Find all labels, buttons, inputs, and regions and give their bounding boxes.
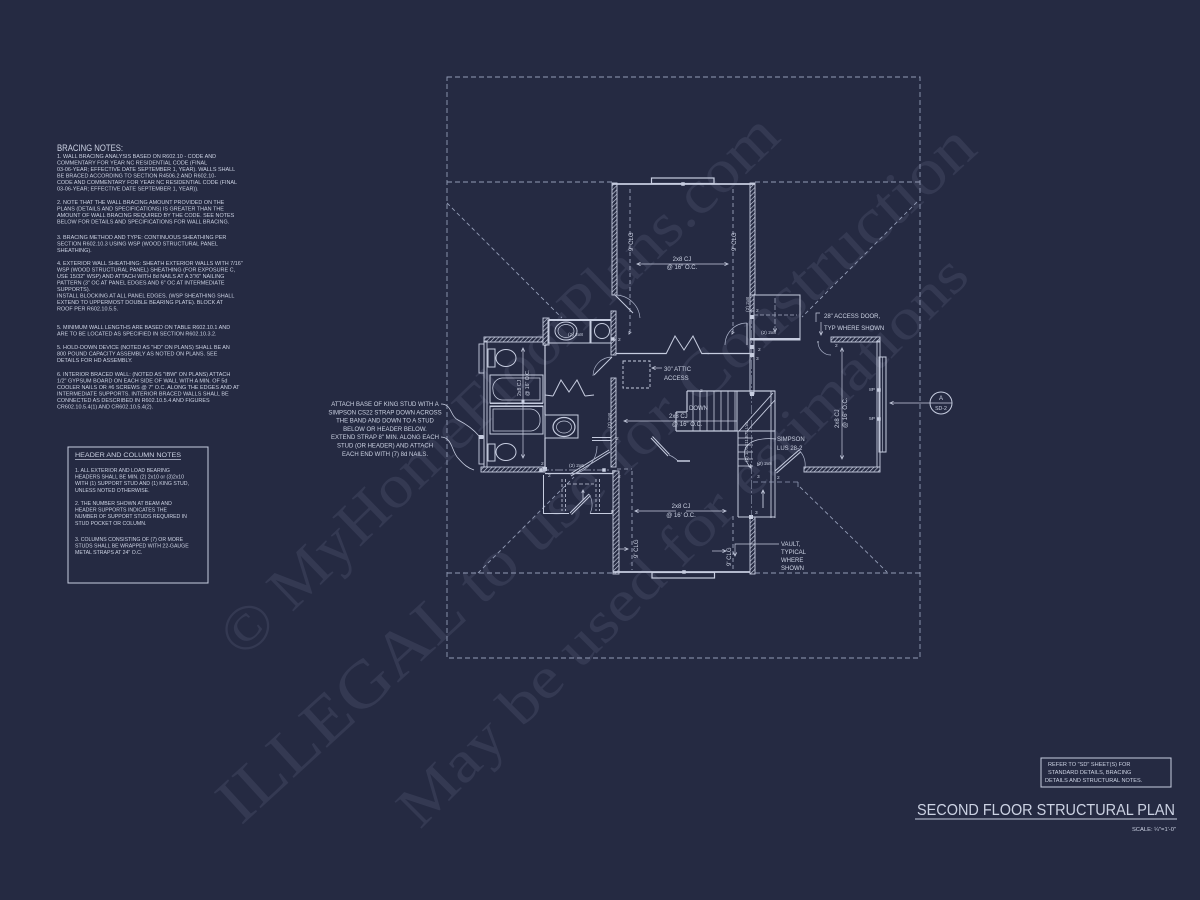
svg-text:HEADER SUPPORTS INDICATES THE: HEADER SUPPORTS INDICATES THE — [75, 508, 167, 514]
svg-text:2: 2 — [548, 473, 551, 479]
svg-text:SD-2: SD-2 — [935, 406, 947, 412]
svg-text:@ 16" O.C.: @ 16" O.C. — [843, 397, 849, 428]
svg-text:ARE TO BE LOCATED AS SPECIFIED: ARE TO BE LOCATED AS SPECIFIED IN SECTIO… — [57, 332, 217, 338]
svg-text:2x8 CJ: 2x8 CJ — [517, 379, 523, 396]
svg-text:REFER TO "SD" SHEET(S) FOR: REFER TO "SD" SHEET(S) FOR — [1048, 762, 1130, 768]
svg-text:@ 16" O.C.: @ 16" O.C. — [667, 265, 698, 271]
svg-text:3. COLUMNS CONSISTING OF (7) O: 3. COLUMNS CONSISTING OF (7) OR MORE — [75, 537, 184, 543]
svg-text:(2) 2x8: (2) 2x8 — [568, 332, 583, 338]
svg-text:9' CLG: 9' CLG — [732, 232, 738, 251]
svg-text:STUD POCKET OR COLUMN.: STUD POCKET OR COLUMN. — [75, 521, 146, 527]
svg-text:1. WALL BRACING ANALYSIS BASED: 1. WALL BRACING ANALYSIS BASED ON R602.1… — [57, 154, 216, 160]
svg-text:2: 2 — [758, 347, 761, 353]
svg-text:@ 16" O.C.: @ 16" O.C. — [672, 422, 703, 428]
svg-text:TYP WHERE SHOWN: TYP WHERE SHOWN — [824, 326, 884, 332]
svg-text:(2) 2x6: (2) 2x6 — [569, 463, 584, 469]
svg-text:SIMPSON CS22 STRAP DOWN ACROSS: SIMPSON CS22 STRAP DOWN ACROSS — [328, 410, 441, 416]
svg-text:3: 3 — [755, 510, 758, 516]
svg-text:28" ACCESS DOOR,: 28" ACCESS DOOR, — [824, 314, 880, 320]
svg-text:LUS 28-2: LUS 28-2 — [777, 446, 803, 452]
svg-text:8P: 8P — [869, 387, 875, 393]
svg-text:9' CLG: 9' CLG — [634, 539, 640, 558]
svg-text:2: 2 — [835, 343, 838, 349]
svg-text:3: 3 — [756, 356, 759, 362]
svg-text:EACH END WITH (7) 8d NAILS.: EACH END WITH (7) 8d NAILS. — [342, 452, 428, 458]
svg-text:COMMENTARY FOR YEAR NC RESIDEN: COMMENTARY FOR YEAR NC RESIDENTIAL CODE … — [57, 161, 207, 167]
svg-text:PATTERN (3" OC AT PANEL EDGES: PATTERN (3" OC AT PANEL EDGES AND 6" OC … — [57, 281, 225, 287]
svg-text:HEADER AND COLUMN NOTES: HEADER AND COLUMN NOTES — [75, 452, 181, 459]
svg-text:ROOF PER R602.10.5.5.: ROOF PER R602.10.5.5. — [57, 307, 119, 313]
svg-text:STANDARD DETAILS, BRACING: STANDARD DETAILS, BRACING — [1048, 770, 1131, 776]
svg-text:CR602.10.5.4(1) AND CR602.10.5: CR602.10.5.4(1) AND CR602.10.5.4(2). — [57, 405, 154, 411]
svg-text:2: 2 — [756, 308, 759, 314]
svg-text:03-06-YEAR; EFFECTIVE DATE SEP: 03-06-YEAR; EFFECTIVE DATE SEPTEMBER 1, … — [57, 187, 199, 193]
svg-text:2: 2 — [618, 337, 621, 343]
svg-text:2x8 CJ: 2x8 CJ — [669, 414, 688, 420]
svg-text:2: 2 — [616, 436, 619, 442]
svg-text:DOWN: DOWN — [689, 406, 708, 412]
svg-text:2: 2 — [541, 461, 544, 467]
svg-text:(2) 1.75x11.875 LVL: (2) 1.75x11.875 LVL — [744, 421, 749, 462]
svg-text:A: A — [939, 396, 943, 402]
svg-text:2: 2 — [757, 462, 760, 468]
svg-text:NUMBER OF SUPPORT STUDS REQUIR: NUMBER OF SUPPORT STUDS REQUIRED IN — [75, 514, 187, 520]
svg-text:CODE AND COMMENTARY FOR YEAR N: CODE AND COMMENTARY FOR YEAR NC RESIDENT… — [57, 180, 237, 186]
svg-text:2x8 CJ: 2x8 CJ — [835, 409, 841, 428]
svg-text:BE BRACED ACCORDING TO SECTION: BE BRACED ACCORDING TO SECTION R4506.2 A… — [57, 174, 216, 180]
svg-text:SHEATHING).: SHEATHING). — [57, 248, 92, 254]
svg-text:2: 2 — [544, 342, 547, 348]
svg-text:BELOW OR HEADER BELOW.: BELOW OR HEADER BELOW. — [343, 427, 427, 433]
svg-text:STUDS SHALL BE WRAPPED WITH 22: STUDS SHALL BE WRAPPED WITH 22-GAUGE — [75, 544, 189, 550]
svg-text:9' CLG: 9' CLG — [727, 547, 733, 566]
svg-text:AMOUNT OF WALL BRACING REQUIRE: AMOUNT OF WALL BRACING REQUIRED BY THE C… — [57, 213, 235, 219]
svg-text:(2) 2x8: (2) 2x8 — [607, 413, 613, 428]
svg-text:SUPPORTS).: SUPPORTS). — [57, 287, 91, 293]
svg-text:SECOND FLOOR STRUCTURAL PLAN: SECOND FLOOR STRUCTURAL PLAN — [917, 802, 1175, 819]
svg-text:2. NOTE THAT THE WALL BRACING: 2. NOTE THAT THE WALL BRACING AMOUNT PRO… — [57, 200, 225, 206]
svg-text:3. BRACING METHOD AND TYPE: CO: 3. BRACING METHOD AND TYPE: CONTINUOUS S… — [57, 235, 226, 241]
svg-text:DETAILS AND STRUCTURAL NOTES.: DETAILS AND STRUCTURAL NOTES. — [1045, 778, 1143, 784]
svg-text:1. ALL EXTERIOR AND LOAD BEARI: 1. ALL EXTERIOR AND LOAD BEARING — [75, 468, 170, 474]
svg-text:UNLESS NOTED OTHERWISE.: UNLESS NOTED OTHERWISE. — [75, 488, 150, 494]
svg-text:@ 16" O.C.: @ 16" O.C. — [525, 370, 531, 396]
svg-text:3: 3 — [757, 474, 760, 480]
svg-text:30" ATTIC: 30" ATTIC — [664, 367, 692, 373]
svg-text:BELOW FOR DETAILS AND SPECIFIC: BELOW FOR DETAILS AND SPECIFICATIONS FOR… — [57, 220, 230, 226]
svg-text:INSTALL BLOCKING AT ALL PANEL: INSTALL BLOCKING AT ALL PANEL EDGES. (WS… — [57, 294, 234, 300]
svg-text:ACCESS: ACCESS — [664, 376, 689, 382]
svg-text:5P: 5P — [869, 416, 875, 422]
svg-text:2: 2 — [777, 475, 780, 481]
svg-text:ATTACH BASE OF KING STUD WITH: ATTACH BASE OF KING STUD WITH A — [331, 402, 438, 408]
svg-text:CONNECTED AS DESCRIBED IN R602: CONNECTED AS DESCRIBED IN R602.10.5.4 AN… — [57, 398, 210, 404]
svg-text:5. MINIMUM WALL LENGTHS ARE BA: 5. MINIMUM WALL LENGTHS ARE BASED ON TAB… — [57, 325, 230, 331]
svg-text:2x8 CJ: 2x8 CJ — [673, 257, 692, 263]
svg-text:EXTEND STRAP 8" MIN. ALONG EAC: EXTEND STRAP 8" MIN. ALONG EACH — [331, 435, 439, 441]
svg-text:STUD (OR HEADER) AND ATTACH: STUD (OR HEADER) AND ATTACH — [337, 444, 433, 450]
svg-text:DETAILS FOR HD ASSEMBLY.: DETAILS FOR HD ASSEMBLY. — [57, 358, 133, 364]
svg-text:METAL STRAPS AT 24" O.C.: METAL STRAPS AT 24" O.C. — [75, 550, 142, 556]
svg-text:EXTEND TO UPPERMOST DOUBLE BEA: EXTEND TO UPPERMOST DOUBLE BEARING PLATE… — [57, 300, 224, 306]
svg-text:6. INTERIOR BRACED WALL: (NOTE: 6. INTERIOR BRACED WALL: (NOTED AS "IBW"… — [57, 372, 230, 378]
svg-text:WSP (WOOD STRUCTURAL PANEL) SH: WSP (WOOD STRUCTURAL PANEL) SHEATHING (F… — [57, 268, 236, 274]
svg-text:800 POUND CAPACITY ASSEMBLY AS: 800 POUND CAPACITY ASSEMBLY AS NOTED ON … — [57, 352, 218, 358]
svg-text:SCALE: ¼"=1'-0": SCALE: ¼"=1'-0" — [1132, 827, 1176, 833]
svg-text:SIMPSON: SIMPSON — [777, 437, 805, 443]
svg-text:BRACING NOTES:: BRACING NOTES: — [57, 142, 123, 153]
svg-text:COOLER NAILS OR #6 SCREWS @ 7": COOLER NAILS OR #6 SCREWS @ 7" O.C. ALON… — [57, 385, 240, 391]
svg-text:5. HOLD-DOWN DEVICE (NOTED AS: 5. HOLD-DOWN DEVICE (NOTED AS "HD" ON PL… — [57, 345, 230, 351]
svg-text:THE BAND AND DOWN TO A STUD: THE BAND AND DOWN TO A STUD — [336, 419, 434, 425]
svg-text:2. THE NUMBER SHOWN AT BEAM AN: 2. THE NUMBER SHOWN AT BEAM AND — [75, 501, 172, 507]
svg-text:INTERMEDIATE SUPPORTS. INTERI: INTERMEDIATE SUPPORTS. INTERIOR BRACED W… — [57, 392, 229, 398]
svg-text:WHERE: WHERE — [781, 558, 803, 564]
svg-text:WITH (1) SUPPORT STUD AND (1): WITH (1) SUPPORT STUD AND (1) KING STUD, — [75, 481, 189, 487]
svg-text:USE 15/32" WSP) AND ATTACH WIT: USE 15/32" WSP) AND ATTACH WITH 8d NAILS… — [57, 274, 224, 280]
svg-text:1/2" GYPSUM BOARD ON EACH SIDE: 1/2" GYPSUM BOARD ON EACH SIDE OF WALL W… — [57, 379, 227, 385]
svg-text:9' CLG: 9' CLG — [629, 232, 635, 251]
svg-text:VAULT,: VAULT, — [781, 542, 801, 548]
svg-text:TYPICAL: TYPICAL — [781, 550, 807, 556]
svg-text:4. EXTERIOR WALL SHEATHING: SH: 4. EXTERIOR WALL SHEATHING: SHEATH EXTER… — [57, 261, 243, 267]
svg-text:@ 16' O.C.: @ 16' O.C. — [666, 513, 696, 519]
svg-text:SHOWN: SHOWN — [781, 566, 804, 572]
svg-text:2: 2 — [700, 388, 703, 394]
svg-text:2: 2 — [618, 474, 621, 480]
svg-text:2x8 CJ: 2x8 CJ — [672, 504, 691, 510]
svg-text:(2) 2x8: (2) 2x8 — [761, 330, 776, 336]
svg-text:SECTION R602.10.3 USING WSP (W: SECTION R602.10.3 USING WSP (WOOD STRUCT… — [57, 242, 218, 248]
svg-text:HEADERS SHALL BE MIN. (2) 2x10: HEADERS SHALL BE MIN. (2) 2x10 or (3)2x1… — [75, 475, 184, 481]
svg-text:PLANS (DETAILS AND SPECIFICATI: PLANS (DETAILS AND SPECIFICATIONS) IS GR… — [57, 207, 224, 213]
svg-text:03-06-YEAR; EFFECTIVE DATE SEP: 03-06-YEAR; EFFECTIVE DATE SEPTEMBER 1, … — [57, 167, 235, 173]
